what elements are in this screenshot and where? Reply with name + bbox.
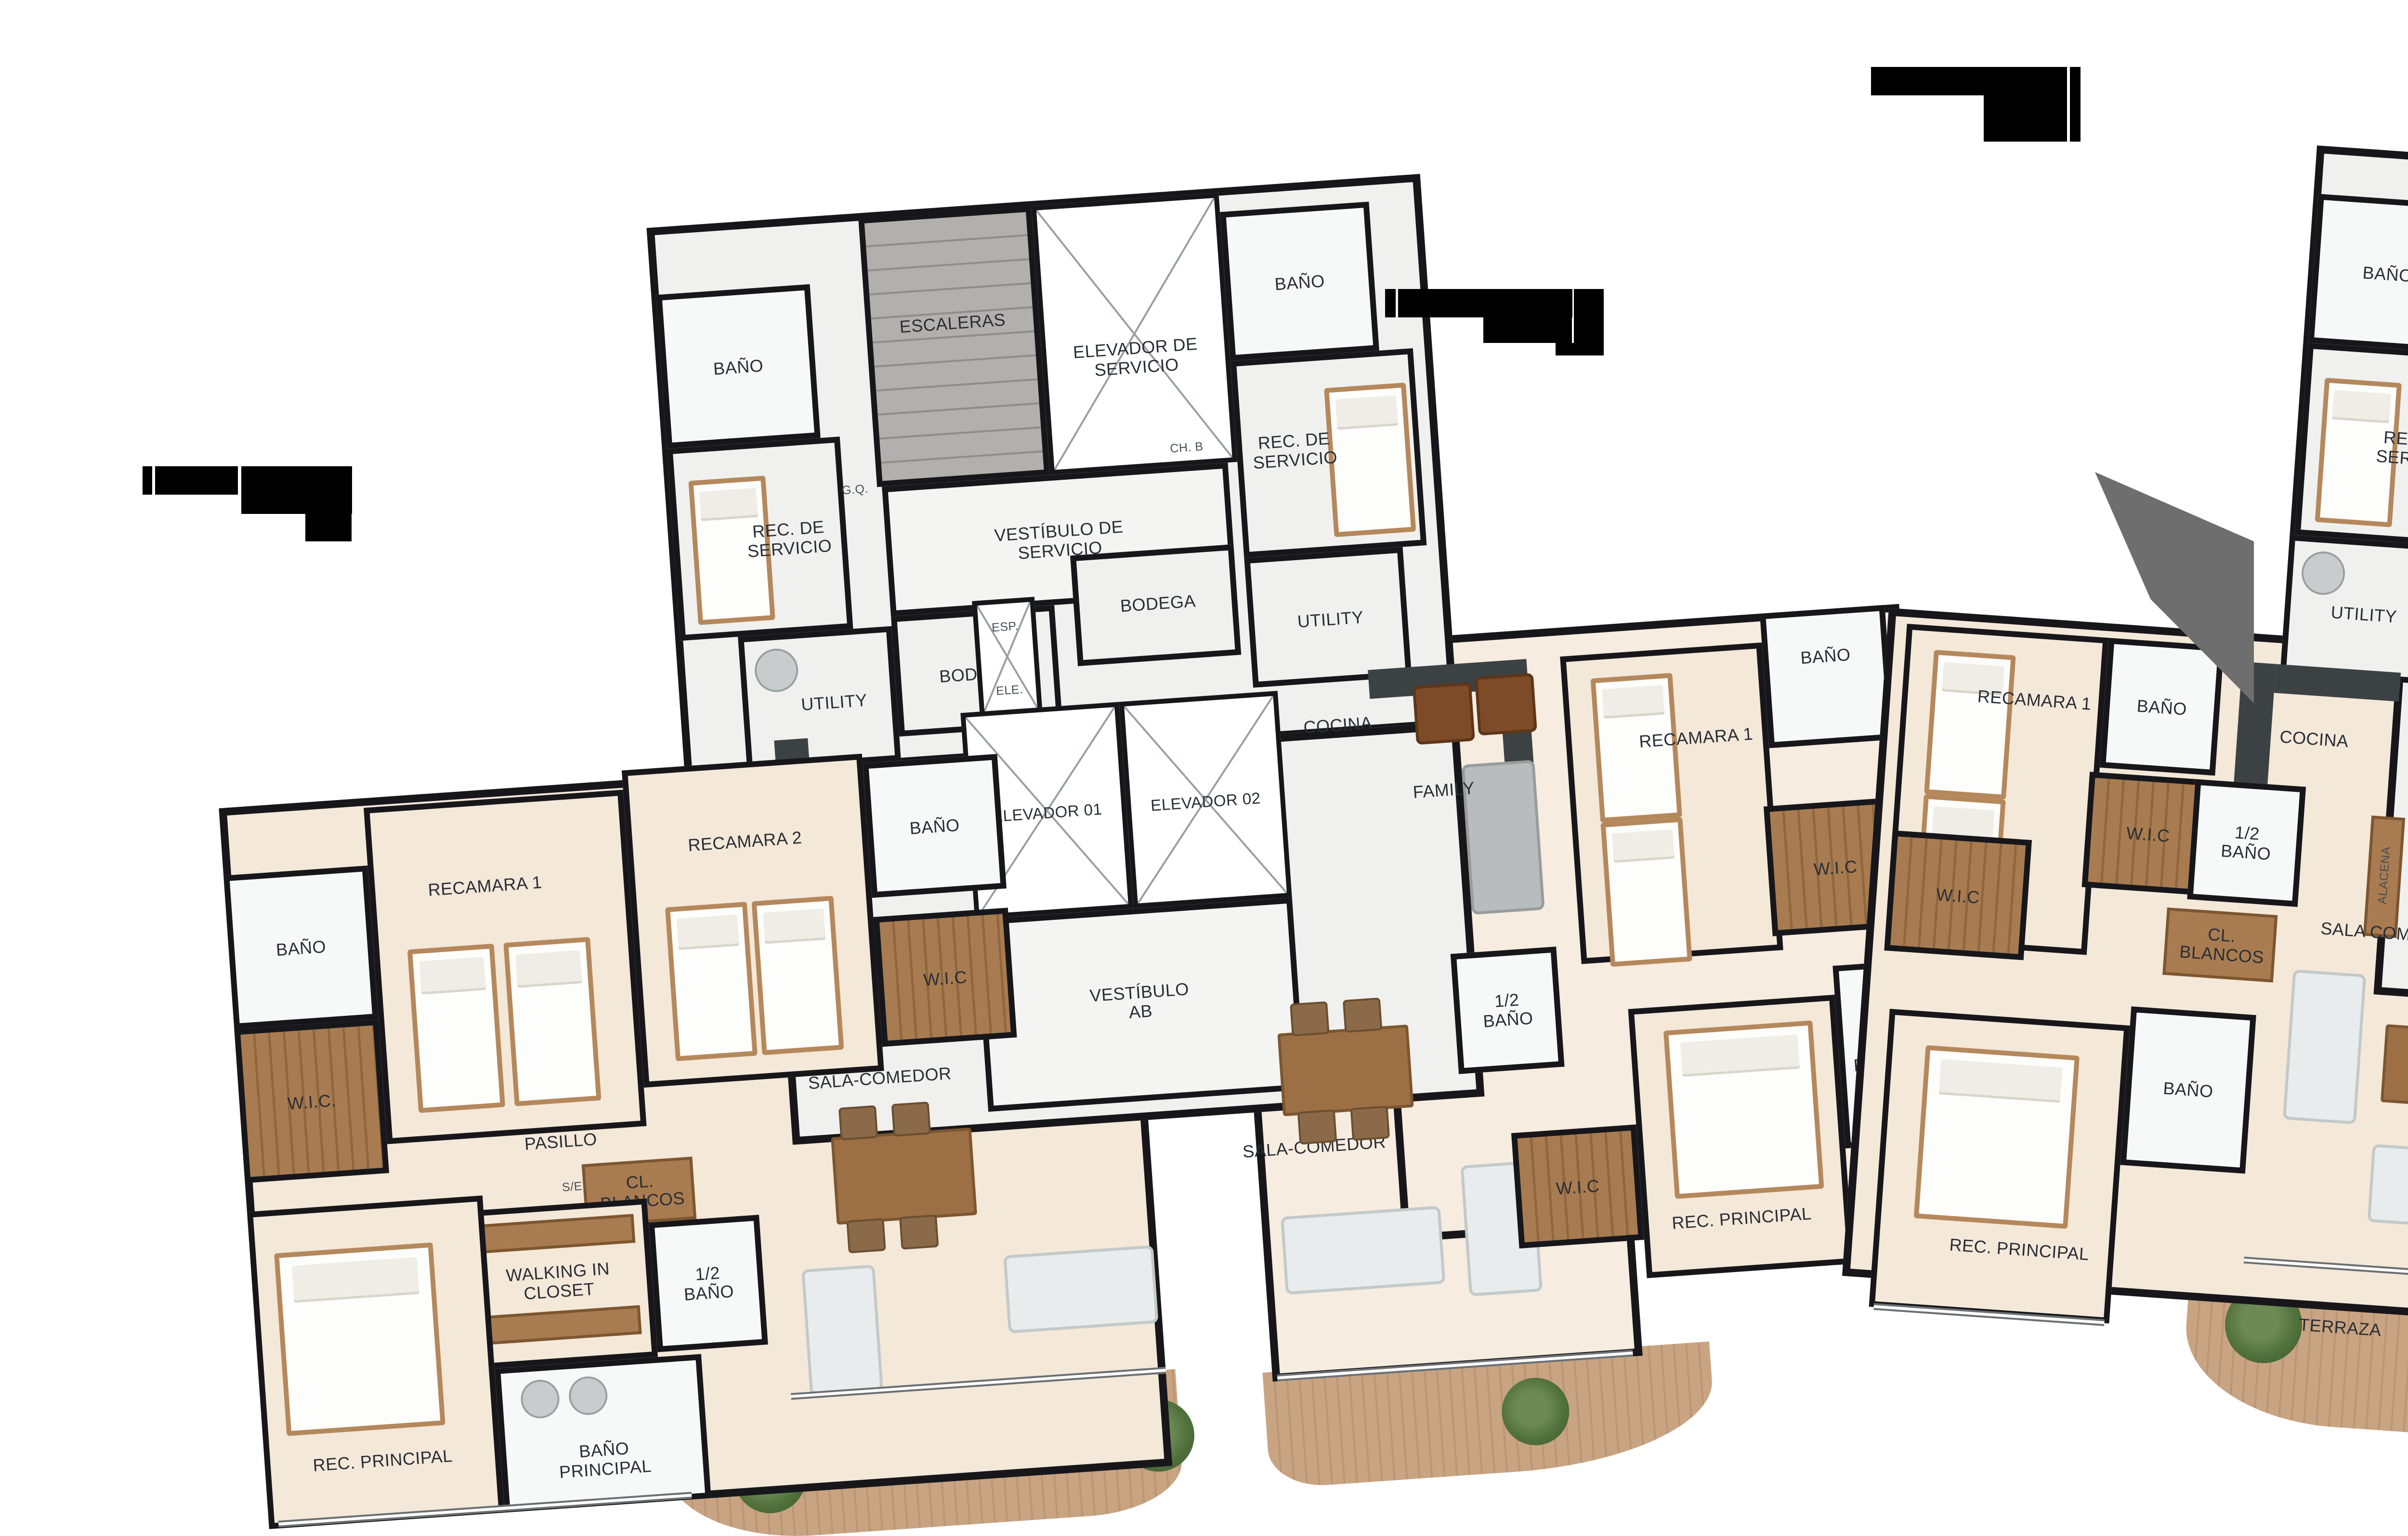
sofa [2283,970,2366,1125]
redaction-bar [305,514,352,541]
redaction-bar [2070,67,2081,142]
sofa [2367,1144,2408,1233]
bed [1924,650,2016,800]
redaction-bar [241,466,352,514]
bed [1914,1045,2080,1229]
room-label: W.I.C [1936,885,1980,907]
redaction-bar [1398,289,1572,317]
redaction-bar [1984,95,2067,142]
room-label: CL. BLANCOS [2179,923,2263,967]
room-label: BAÑO [2162,1078,2214,1101]
redaction-bar [155,466,238,495]
floorplan-canvas: BAÑO REC. DE SERVICIO ESCALERAS ELEVADOR… [0,0,2408,1536]
room-label: BAÑO [2136,696,2188,719]
room-label: W.I.C [2126,824,2171,846]
room-label: BAÑO [2362,263,2408,286]
redaction-bar [1483,317,1572,343]
coffee-table [2381,1024,2408,1109]
room-label: 1/2 BAÑO [2214,822,2279,865]
redaction-bar [143,466,152,495]
building-wing-cd: TERRAZA BAÑO REC. DE SERVICIO ELEVADOR D… [0,0,2408,1536]
redaction-bar [1574,289,1604,355]
redaction-bar [1385,289,1396,317]
redaction-bar [1871,67,2067,95]
redaction-bar [1556,343,1575,355]
